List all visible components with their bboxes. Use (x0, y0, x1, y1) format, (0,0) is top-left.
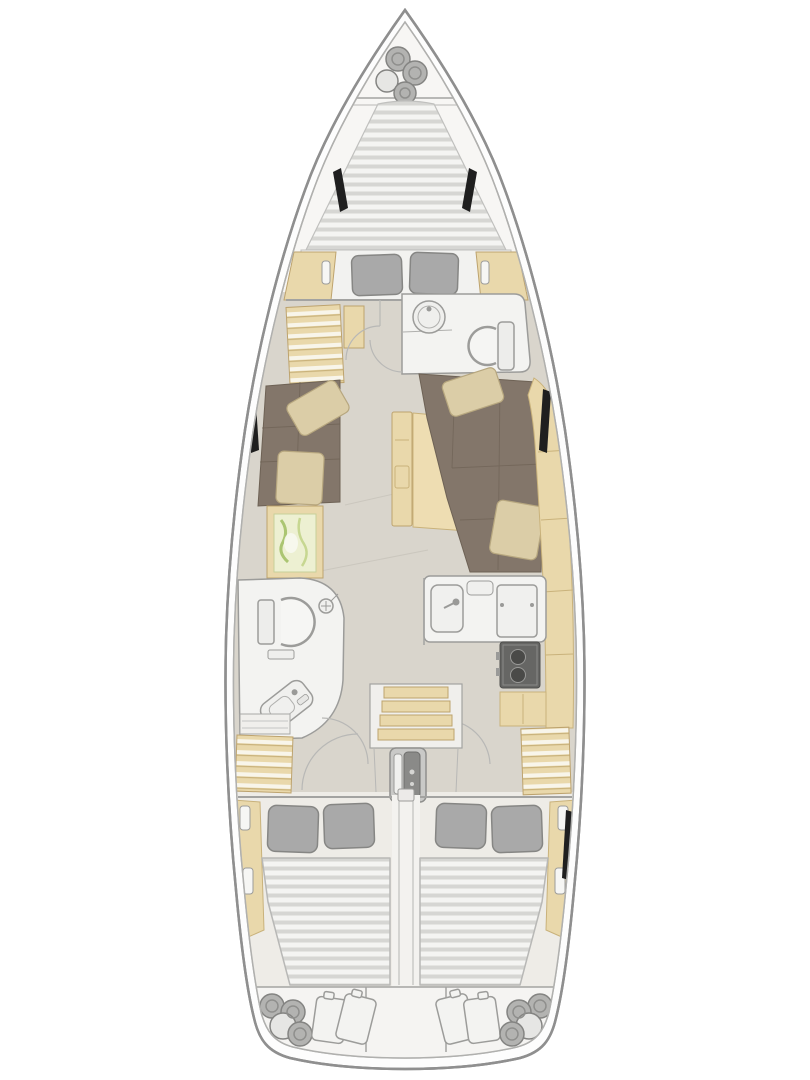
port-hanging-locker (235, 714, 293, 793)
yacht-floorplan-image (0, 0, 810, 1080)
forward-head (402, 294, 530, 374)
aft-center-divider (392, 789, 420, 987)
chart-table (267, 506, 323, 578)
burner-icon (511, 650, 526, 665)
salon-port-settee (258, 378, 351, 506)
galley-stove (496, 642, 540, 688)
burner-icon (511, 668, 526, 683)
galley-drainer (467, 581, 493, 595)
washbasin-icon (413, 301, 445, 333)
floorplan-svg (0, 0, 810, 1080)
galley-fridge (497, 585, 537, 637)
galley-sink (431, 585, 463, 632)
